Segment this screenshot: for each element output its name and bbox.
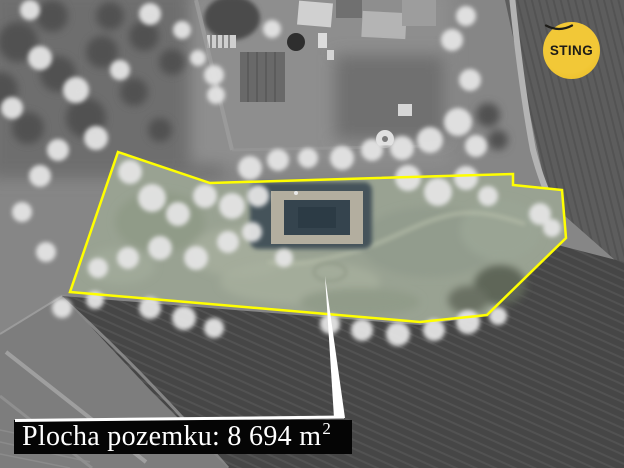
farm-vehicle: [318, 33, 327, 48]
garden-pond: [287, 33, 305, 51]
area-label: Plocha pozemku: 8 694 m2: [14, 420, 352, 454]
area-label-text: Plocha pozemku: 8 694 m: [22, 421, 321, 452]
farm-roof: [297, 1, 333, 28]
building-detail-dot: [294, 191, 298, 195]
smile-icon: [543, 23, 575, 32]
manor-courtyard: [298, 207, 336, 228]
sting-logo-badge: STING: [543, 22, 600, 79]
area-label-superscript: 2: [322, 419, 331, 438]
sting-logo-text: STING: [550, 43, 593, 58]
farm-roof-2: [361, 11, 406, 39]
aerial-photo-view: STING Plocha pozemku: 8 694 m2: [0, 0, 624, 468]
aerial-photo: [0, 0, 624, 468]
small-shed: [398, 104, 412, 116]
